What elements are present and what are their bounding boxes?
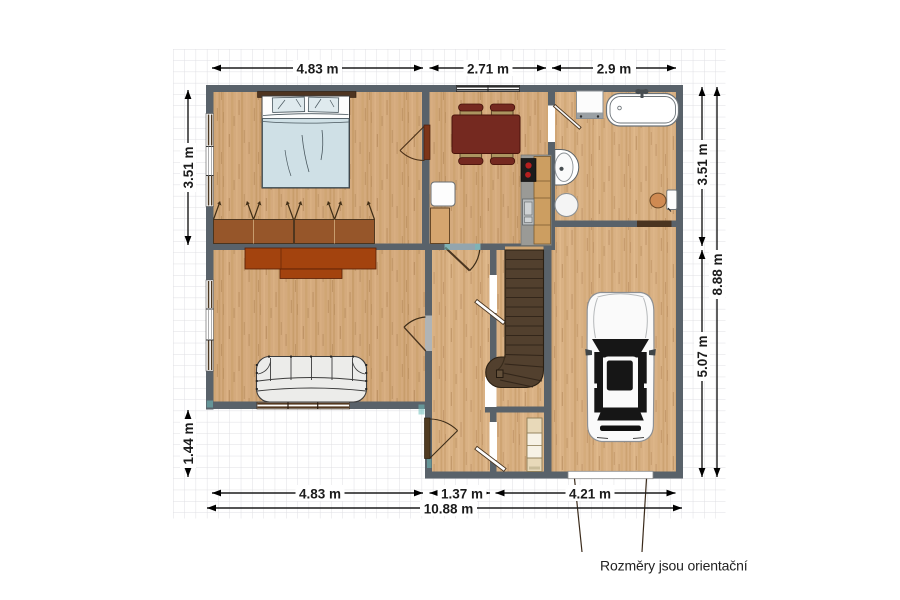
svg-text:2.71 m: 2.71 m: [467, 62, 509, 77]
svg-text:2.9 m: 2.9 m: [597, 62, 632, 77]
svg-text:1.44 m: 1.44 m: [181, 422, 196, 464]
svg-text:10.88 m: 10.88 m: [424, 502, 474, 517]
svg-text:4.83 m: 4.83 m: [296, 62, 338, 77]
svg-text:5.07 m: 5.07 m: [695, 335, 710, 377]
svg-text:8.88 m: 8.88 m: [710, 253, 725, 295]
svg-text:1.37 m: 1.37 m: [441, 487, 483, 502]
svg-text:4.21 m: 4.21 m: [569, 487, 611, 502]
svg-text:3.51 m: 3.51 m: [695, 143, 710, 185]
svg-text:Rozměry jsou orientační: Rozměry jsou orientační: [600, 558, 748, 574]
svg-text:4.83 m: 4.83 m: [299, 487, 341, 502]
svg-text:3.51 m: 3.51 m: [181, 146, 196, 188]
